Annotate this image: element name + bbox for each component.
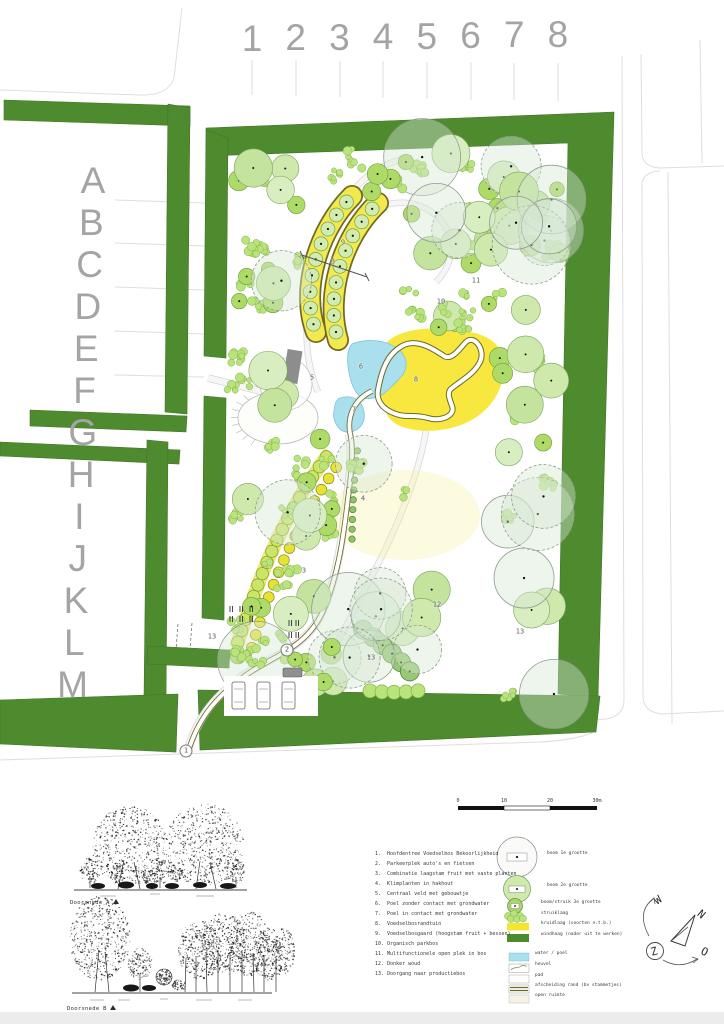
section-marker-icon (110, 1005, 116, 1010)
shrub-cluster (414, 314, 420, 320)
shrub-cluster (257, 661, 265, 669)
compass-letter: Z (649, 944, 659, 958)
section-shrub (146, 883, 158, 889)
shrub-cluster (502, 692, 508, 698)
scalebar-tick: 10 (501, 798, 507, 804)
shrub-cluster (285, 569, 293, 577)
tree-row-circle (256, 567, 268, 579)
shrub-cluster (413, 290, 419, 296)
legend-path-icon (509, 975, 529, 983)
grid-row-label: D (75, 288, 102, 325)
shrub-cluster (263, 640, 269, 646)
plan-marker-5: 5 (310, 375, 314, 382)
legend-item: 5. Centraal veld met gebouwtje (375, 892, 468, 897)
legend-item: 12. Donker woud (375, 962, 420, 967)
tree-row-circle (266, 545, 278, 557)
section-a-text: Doorsnede A (70, 900, 110, 906)
compass-arc (643, 899, 653, 936)
shrub-cluster (227, 617, 236, 626)
shrub-cluster (466, 314, 473, 321)
street-line (115, 243, 206, 246)
passage-dashes (176, 624, 178, 650)
plan-marker-3: 3 (302, 568, 306, 575)
tree-row-circle (411, 684, 425, 698)
grid-row-label: K (64, 582, 89, 619)
grid-row-label: E (74, 330, 99, 367)
car (232, 682, 245, 709)
landscape-plan-sheet: 0102030mWNOZ 12345678 ABCDEFGHIJKLM 1233… (0, 0, 724, 1024)
car (257, 682, 270, 709)
shrub-cluster (236, 359, 242, 365)
shrub-cluster (228, 359, 235, 366)
shrub-cluster (262, 561, 268, 567)
shrub-cluster (466, 326, 472, 332)
legend-item: 6. Poel zonder contact met grondwater (375, 902, 489, 907)
shrub-cluster (510, 693, 515, 698)
grid-row-label: B (79, 204, 104, 241)
hedge-windhaag (4, 100, 190, 126)
section-marker-icon (113, 899, 119, 904)
shrub-cluster (492, 290, 499, 297)
legend-item: 3. Combinatie laagstam fruit met vaste p… (375, 872, 516, 877)
shrub-cluster (464, 293, 469, 298)
shrub-cluster (319, 461, 328, 470)
plan-marker-13: 13 (367, 655, 375, 662)
shrub-cluster (403, 487, 410, 494)
shrub-cluster (224, 386, 231, 393)
legend-open-icon (509, 995, 529, 1003)
section-b-label: Doorsnede B (67, 1005, 116, 1013)
grid-row-label: J (68, 540, 87, 577)
legend-symbol-label: afscheiding rand (bv stammetjes) (535, 984, 622, 989)
shrub-cluster (457, 327, 463, 333)
hedge-windhaag (0, 694, 178, 752)
shrub-cluster (239, 353, 245, 359)
plan-marker-13: 13 (208, 634, 216, 641)
shrub-cluster (294, 455, 301, 462)
grid-column-label: 5 (417, 18, 438, 55)
grid-row-label: I (74, 498, 84, 535)
tree-row-circle (278, 555, 289, 566)
section-shrub (118, 882, 134, 889)
plan-marker-13: 13 (516, 629, 524, 636)
shrub-cluster (343, 146, 352, 155)
tree-row-circle (349, 536, 355, 542)
plan-marker-6: 6 (359, 364, 363, 371)
section-shrub (220, 883, 236, 889)
plan-marker-8: 8 (414, 377, 418, 384)
shrub-cluster (405, 308, 412, 315)
tree-row-circle (349, 526, 355, 532)
tree-row-circle (350, 497, 356, 503)
scalebar-segment (504, 806, 550, 810)
legend-symbol-label: boom 1e grootte (547, 852, 588, 857)
shrub-cluster (265, 443, 271, 449)
shrub-cluster (228, 350, 237, 359)
shrub-cluster (336, 169, 343, 176)
plan-marker-2: 2 (281, 644, 294, 657)
legend-item: 7. Poel in contact met grondwater (375, 912, 477, 917)
car (283, 668, 302, 677)
grid-column-label: 4 (373, 18, 394, 55)
section-shrub (165, 883, 179, 889)
tree-row-circle (316, 484, 327, 495)
section-b-text: Doorsnede B (67, 1006, 107, 1012)
grid-column-label: 2 (285, 19, 306, 56)
grid-row-label: C (76, 246, 103, 283)
shrub-cluster (274, 569, 282, 577)
plan-marker-12: 12 (433, 602, 441, 609)
section-shrub (91, 883, 105, 889)
legend-herb-icon (507, 923, 529, 931)
shrub-cluster (459, 309, 464, 314)
hedge-windhaag (30, 410, 187, 432)
scalebar-tick: 20 (547, 798, 553, 804)
scalebar-tick: 30m (592, 798, 601, 804)
legend-symbol-label: heuvel (535, 963, 551, 968)
section-shrub (142, 985, 156, 991)
section-a-label: Doorsnede A (70, 899, 119, 907)
grid-column-label: 1 (242, 20, 263, 57)
street-line (114, 375, 204, 377)
shrub-cluster (331, 168, 336, 173)
tree-row-circle (350, 506, 356, 512)
section-shrub (123, 985, 139, 992)
shrub-cluster (255, 303, 261, 309)
compass-letter: W (652, 893, 665, 908)
shrub-cluster (440, 309, 446, 315)
scalebar-segment (550, 806, 597, 810)
shrub-cluster (301, 460, 309, 468)
hedge-windhaag (202, 396, 226, 620)
legend-item: 10. Organisch parkbos (375, 942, 438, 947)
street-line (642, 184, 724, 714)
legend-symbol-label: pad (535, 974, 543, 979)
street-line (642, 171, 660, 184)
street-line (668, 172, 672, 724)
shrub-cluster (271, 442, 279, 450)
shrub-cluster (326, 490, 334, 498)
shrub-cluster (253, 250, 260, 257)
street-line (115, 200, 206, 203)
legend-item: 1. Hoofdentree Voedselbos Bekoorlijkheid (375, 852, 498, 857)
shrub-cluster (293, 465, 300, 472)
shrub-cluster (331, 176, 336, 181)
plan-marker-9: 9 (341, 240, 345, 247)
shrub-cluster (252, 644, 261, 653)
legend-item: 11. Multifunctionele open plek in bos (375, 952, 486, 957)
legend-symbol-label: windhaag (nader uit te werken) (541, 933, 622, 938)
legend-hill-icon (509, 964, 529, 973)
car (282, 682, 295, 709)
grid-row-label: H (68, 456, 95, 493)
street-line (0, 8, 182, 95)
shrub-cluster (232, 388, 238, 394)
passage-dashes (190, 623, 192, 649)
plan-marker-10: 10 (437, 299, 445, 306)
grid-row-label: M (57, 666, 88, 703)
grid-column-label: 6 (460, 17, 481, 54)
tree-row-circle (349, 516, 355, 522)
legend-item: 13. Doorgang naar productiebos (375, 972, 465, 977)
plan-marker-4: 4 (361, 496, 365, 503)
legend-symbol-label: boom/struik 3e grootte (541, 901, 601, 906)
grid-row-label: A (81, 162, 106, 199)
street-line (115, 287, 205, 290)
legend-water-icon (509, 953, 529, 961)
legend-symbol-label: kruidlaag (soorten n.t.b.) (541, 922, 611, 927)
grid-column-label: 7 (504, 16, 525, 53)
shrub-cluster (253, 658, 258, 663)
shrub-cluster (282, 581, 290, 589)
plan-marker-1: 1 (180, 745, 193, 758)
legend-symbol-label: boom 2e grootte (547, 884, 588, 889)
shrub-cluster (399, 287, 406, 294)
street-line (641, 54, 724, 168)
north-arrow-icon (671, 915, 695, 946)
shrub-cluster (468, 160, 475, 167)
compass-letter: O (699, 945, 710, 960)
legend-symbol-label: struiklaag (541, 912, 568, 917)
legend-item: 4. Klimplanten in hakhout (375, 882, 453, 887)
tree-row-circle (323, 473, 334, 484)
shrub-cluster (319, 456, 325, 462)
compass-letter: N (695, 907, 708, 921)
plan-marker-7: 7 (352, 407, 356, 414)
shrub-cluster (247, 242, 256, 251)
tree-row-circle (252, 579, 264, 591)
legend-edge-icon (509, 985, 529, 993)
scalebar-tick: 0 (456, 798, 459, 804)
legend-item: 2. Parkeerplek auto's en fietsen (375, 862, 474, 867)
legend-shrub-icon (520, 915, 527, 922)
legend-item: 9. Voedselbosgaard (hoogstam fruit + bes… (375, 932, 510, 937)
shrub-cluster (246, 383, 253, 390)
plan-marker-11: 11 (472, 278, 480, 285)
shrub-cluster (328, 455, 335, 462)
plan-marker-3: 3 (331, 259, 335, 266)
compass-arc (663, 959, 697, 965)
shrub-cluster (231, 648, 240, 657)
shrub-cluster (247, 297, 256, 306)
grid-row-label: L (64, 624, 85, 661)
shrub-cluster (242, 236, 250, 244)
grid-column-label: 8 (548, 16, 569, 53)
legend-symbol-label: open ruimte (535, 994, 565, 999)
shrub-cluster (238, 516, 244, 522)
hedge-windhaag (204, 130, 228, 358)
shrub-cluster (358, 164, 366, 172)
shrub-cluster (400, 494, 408, 502)
street-line (114, 331, 204, 334)
site-plan-graphics: 0102030mWNOZ (0, 0, 724, 1024)
shrub-cluster (454, 319, 463, 328)
shrub-cluster (230, 511, 238, 519)
street-line (700, 40, 702, 163)
grid-row-label: F (73, 372, 96, 409)
legend-item: 8. Voedselbosrandtuin (375, 922, 441, 927)
section-shrub (193, 882, 207, 888)
scalebar-segment (458, 806, 504, 810)
shrub-cluster (470, 308, 476, 314)
grid-column-label: 3 (329, 19, 350, 56)
legend-symbol-label: water / poel (535, 952, 568, 957)
sheet-bottom-strip (0, 1012, 724, 1024)
shrub-cluster (235, 373, 244, 382)
grid-row-label: G (68, 414, 97, 451)
hedge-windhaag (165, 104, 190, 414)
